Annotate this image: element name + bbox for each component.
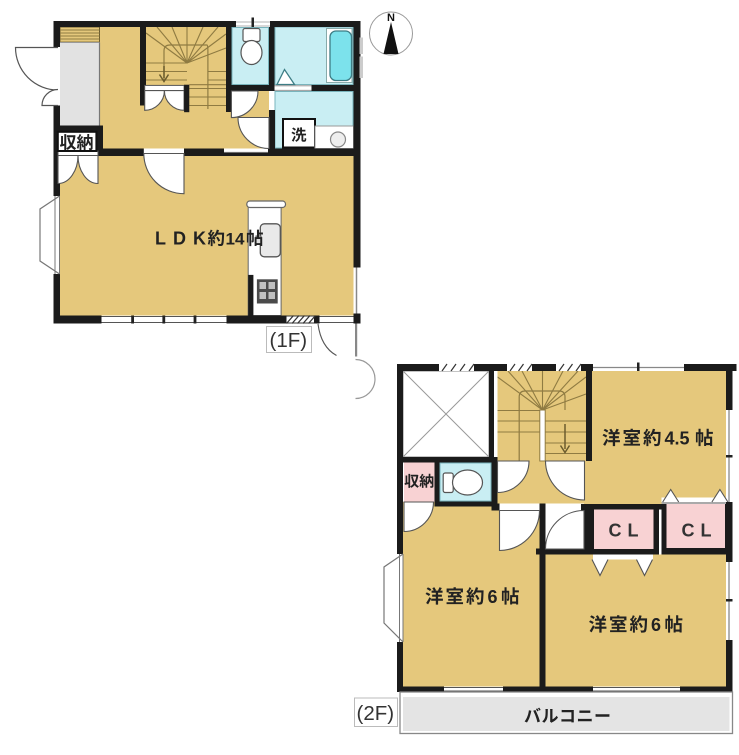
svg-text:(1F): (1F) [270, 329, 308, 352]
svg-text:CL: CL [609, 521, 645, 541]
svg-text:6: 6 [651, 615, 661, 635]
svg-text:(2F): (2F) [357, 702, 395, 725]
svg-text:4.5: 4.5 [665, 429, 690, 449]
svg-text:N: N [387, 12, 395, 24]
svg-text:6: 6 [488, 587, 498, 607]
svg-text:CL: CL [682, 521, 718, 541]
svg-text:LDK: LDK [155, 229, 213, 249]
svg-text:14: 14 [226, 230, 245, 249]
